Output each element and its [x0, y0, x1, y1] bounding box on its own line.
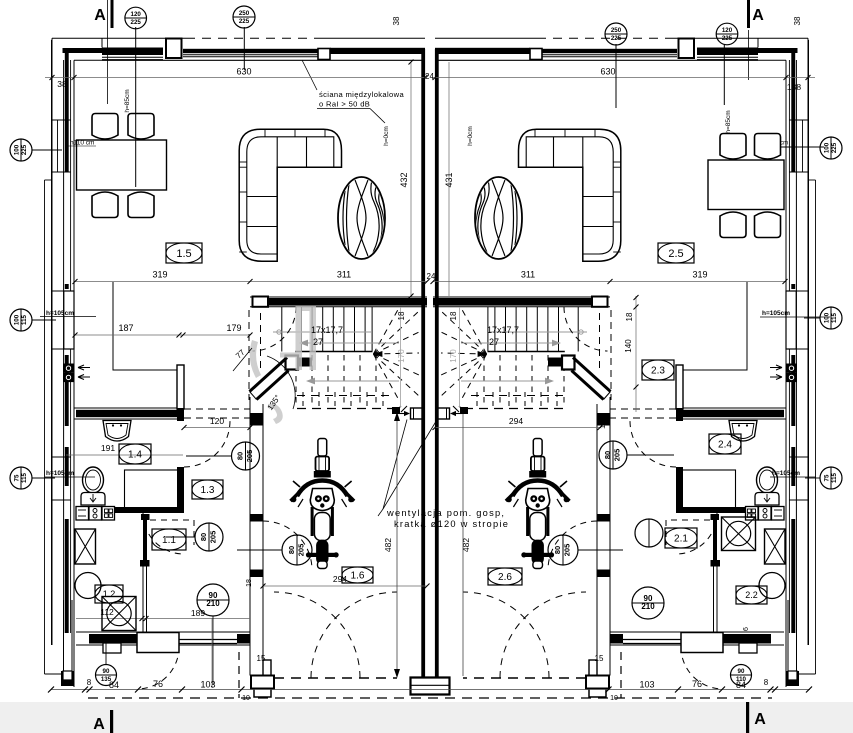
svg-text:6: 6 — [743, 627, 750, 631]
svg-text:2.4: 2.4 — [718, 440, 732, 451]
svg-text:1.1: 1.1 — [162, 535, 176, 546]
svg-text:250: 250 — [611, 27, 622, 34]
svg-text:100: 100 — [13, 314, 20, 325]
svg-text:h=0cm: h=0cm — [467, 126, 474, 146]
svg-text:170: 170 — [449, 349, 458, 363]
svg-text:o RaI > 50 dB: o RaI > 50 dB — [319, 100, 370, 109]
svg-text:225: 225 — [239, 18, 250, 25]
svg-text:10: 10 — [242, 695, 250, 702]
svg-text:38: 38 — [793, 16, 802, 25]
svg-text:225: 225 — [611, 35, 622, 42]
svg-text:h=85cm: h=85cm — [725, 110, 732, 133]
svg-text:27: 27 — [313, 337, 323, 347]
svg-text:115: 115 — [21, 314, 28, 325]
svg-text:225: 225 — [831, 142, 838, 153]
svg-text:A: A — [93, 716, 105, 733]
svg-text:120: 120 — [131, 11, 142, 18]
svg-text:225: 225 — [131, 19, 142, 26]
svg-text:103: 103 — [639, 680, 654, 690]
svg-text:38: 38 — [392, 16, 401, 25]
svg-text:138: 138 — [787, 82, 801, 92]
svg-text:18: 18 — [397, 311, 406, 320]
svg-text:17x17,7: 17x17,7 — [311, 325, 343, 335]
svg-text:187: 187 — [118, 323, 133, 333]
svg-text:115: 115 — [21, 472, 28, 483]
svg-text:2.2: 2.2 — [745, 590, 758, 600]
svg-text:225: 225 — [21, 144, 28, 155]
svg-text:115: 115 — [831, 472, 838, 483]
svg-text:19: 19 — [600, 421, 607, 429]
svg-text:80: 80 — [235, 452, 244, 460]
svg-text:2.5: 2.5 — [668, 248, 683, 260]
svg-text:205: 205 — [612, 449, 621, 462]
svg-text:210: 210 — [641, 602, 655, 611]
svg-text:38: 38 — [57, 79, 67, 89]
svg-text:120: 120 — [210, 416, 224, 426]
svg-text:1.4: 1.4 — [128, 450, 142, 461]
svg-text:8: 8 — [764, 678, 769, 687]
svg-text:A: A — [752, 7, 764, 24]
svg-text:191: 191 — [101, 443, 115, 453]
svg-text:630: 630 — [600, 67, 615, 77]
svg-text:80: 80 — [553, 546, 562, 554]
svg-text:140: 140 — [624, 339, 633, 353]
svg-text:h=105cm: h=105cm — [762, 310, 790, 317]
svg-text:2.1: 2.1 — [674, 534, 688, 545]
svg-text:17x17,7: 17x17,7 — [487, 325, 519, 335]
svg-text:10: 10 — [610, 695, 618, 702]
svg-text:h110 cm: h110 cm — [70, 140, 94, 147]
svg-text:210: 210 — [206, 599, 220, 608]
svg-text:h=0cm: h=0cm — [383, 126, 390, 146]
svg-text:75: 75 — [823, 474, 830, 481]
svg-text:h=85cm: h=85cm — [124, 89, 131, 112]
svg-text:319: 319 — [152, 270, 167, 280]
svg-text:27: 27 — [489, 337, 499, 347]
svg-text:18: 18 — [449, 311, 458, 320]
svg-text:205: 205 — [245, 450, 254, 463]
svg-text:1.3: 1.3 — [201, 485, 215, 496]
svg-text:ściana międzylokalowa: ściana międzylokalowa — [319, 90, 404, 99]
svg-text:1.5: 1.5 — [176, 248, 191, 260]
svg-text:179: 179 — [226, 323, 241, 333]
svg-text:wentylacja pom. gosp,: wentylacja pom. gosp, — [386, 508, 505, 518]
svg-text:18: 18 — [246, 579, 253, 587]
svg-text:76: 76 — [692, 679, 702, 689]
svg-text:90: 90 — [738, 668, 745, 675]
svg-text:115: 115 — [831, 312, 838, 323]
svg-text:8: 8 — [87, 678, 92, 687]
svg-text:18: 18 — [625, 312, 634, 321]
svg-text:205: 205 — [562, 544, 571, 557]
svg-text:2.3: 2.3 — [651, 366, 665, 377]
svg-text:100: 100 — [823, 142, 830, 153]
svg-text:kratka ø120 w stropie: kratka ø120 w stropie — [394, 519, 509, 529]
svg-text:h=105cm: h=105cm — [46, 470, 74, 477]
svg-text:1.6: 1.6 — [351, 571, 365, 582]
svg-text:h=105cm: h=105cm — [772, 470, 800, 477]
svg-text:432: 432 — [399, 172, 409, 187]
svg-text:120: 120 — [722, 27, 733, 34]
svg-text:76: 76 — [153, 679, 163, 689]
svg-text:75: 75 — [13, 474, 20, 481]
svg-text:80: 80 — [287, 546, 296, 554]
svg-text:84: 84 — [736, 680, 746, 690]
svg-text:482: 482 — [461, 538, 471, 552]
svg-text:225: 225 — [722, 35, 733, 42]
svg-text:205: 205 — [208, 531, 217, 544]
svg-text:A: A — [754, 711, 766, 728]
svg-text:311: 311 — [337, 270, 351, 280]
svg-text:80: 80 — [199, 533, 208, 541]
svg-text:205: 205 — [296, 544, 305, 557]
svg-text:482: 482 — [383, 538, 393, 552]
svg-text:1.2: 1.2 — [103, 589, 116, 599]
svg-text:15: 15 — [595, 654, 604, 663]
svg-text:170: 170 — [397, 349, 406, 363]
svg-text:100: 100 — [823, 312, 830, 323]
svg-text:A: A — [94, 7, 106, 24]
svg-text:80: 80 — [603, 451, 612, 459]
svg-text:90: 90 — [103, 668, 110, 675]
svg-text:431: 431 — [444, 172, 454, 187]
svg-text:135: 135 — [101, 676, 112, 683]
svg-text:2.6: 2.6 — [498, 572, 512, 583]
svg-text:h=105cm: h=105cm — [46, 310, 74, 317]
svg-text:15: 15 — [257, 654, 266, 663]
svg-text:100: 100 — [13, 144, 20, 155]
svg-text:250: 250 — [239, 10, 250, 17]
svg-text:311: 311 — [521, 270, 535, 280]
svg-text:319: 319 — [692, 270, 707, 280]
svg-text:294: 294 — [509, 416, 523, 426]
